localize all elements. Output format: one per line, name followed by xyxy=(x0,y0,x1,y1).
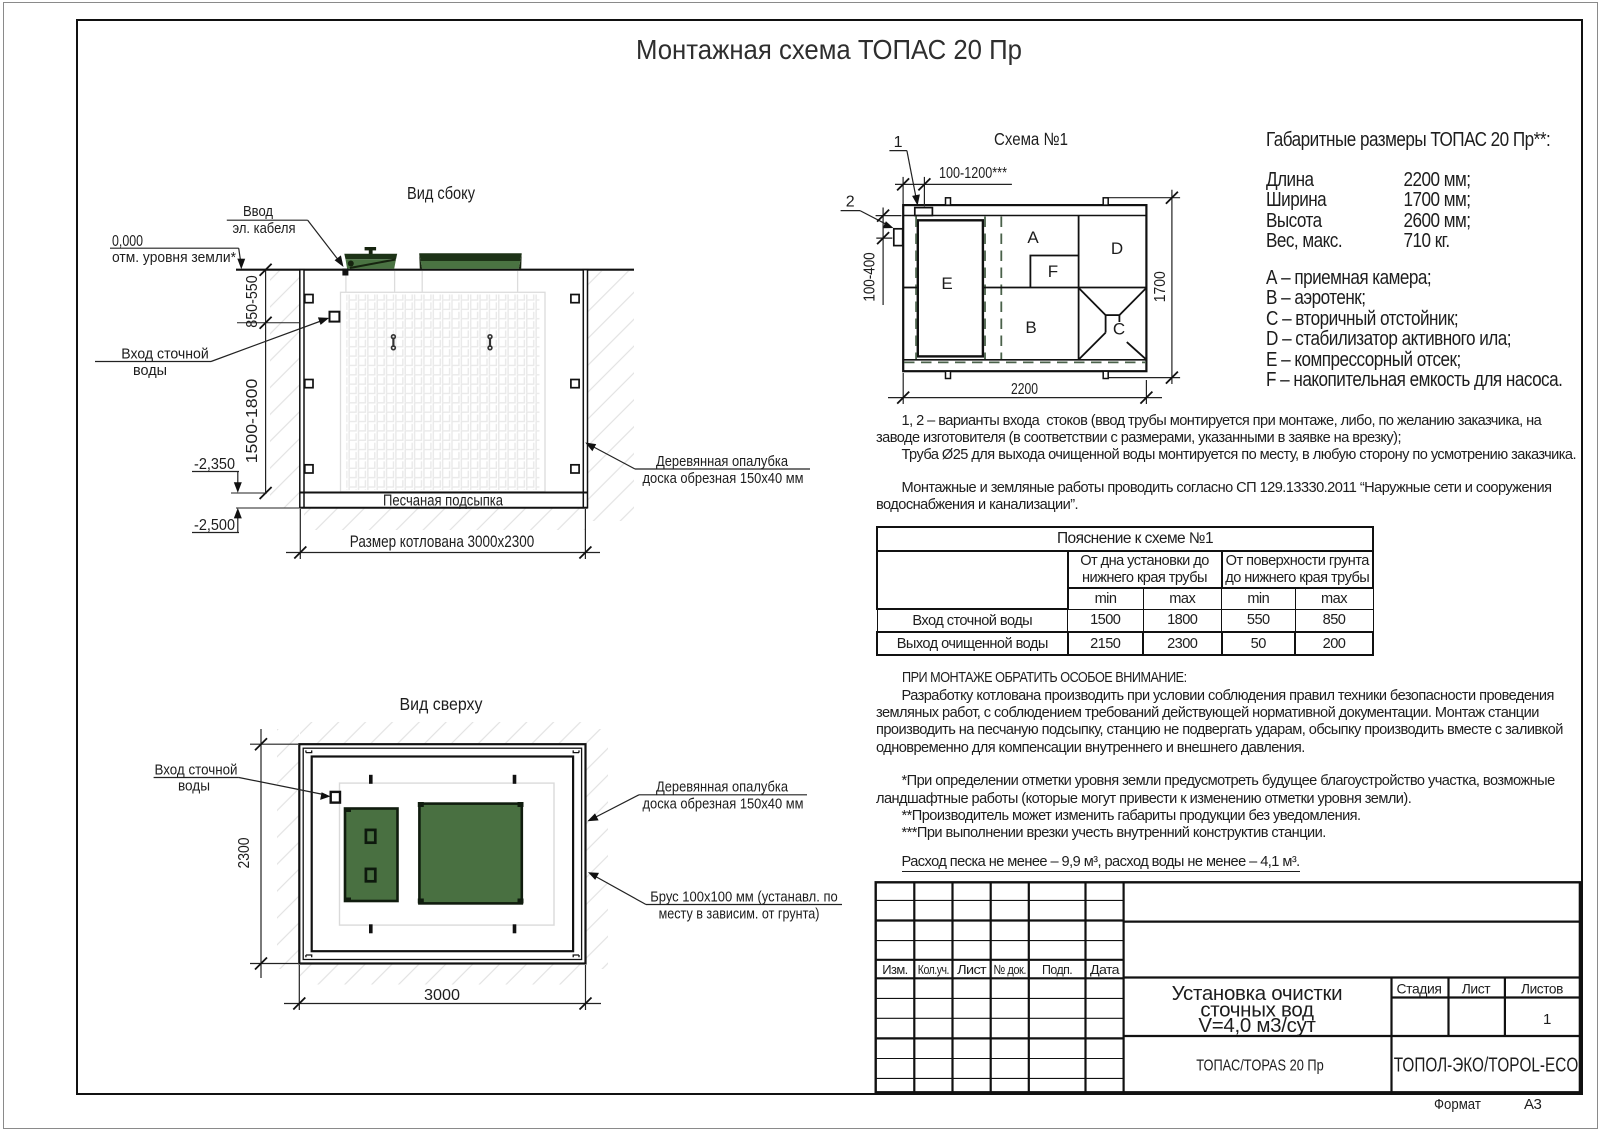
svg-text:Подп.: Подп. xyxy=(1042,962,1072,977)
svg-text:Дата: Дата xyxy=(1090,962,1120,977)
svg-text:100-400: 100-400 xyxy=(862,252,879,302)
svg-text:A: A xyxy=(1027,228,1039,247)
svg-text:E: E xyxy=(941,274,952,293)
svg-text:Изм.: Изм. xyxy=(882,962,907,977)
svg-text:V=4,0 м3/сут: V=4,0 м3/сут xyxy=(1198,1014,1316,1037)
svg-text:ТОПОЛ-ЭКО/TOPOL-ECO: ТОПОЛ-ЭКО/TOPOL-ECO xyxy=(1394,1054,1579,1077)
svg-text:Брус 100х100 мм (устанавл. по: Брус 100х100 мм (устанавл. по xyxy=(650,889,838,906)
svg-text:2300: 2300 xyxy=(236,837,253,868)
svg-text:Кол.уч.: Кол.уч. xyxy=(918,962,949,977)
svg-text:месту в зависим. от грунта): месту в зависим. от грунта) xyxy=(659,906,820,923)
svg-text:2200: 2200 xyxy=(1011,381,1038,398)
svg-text:B: B xyxy=(1025,318,1036,337)
svg-text:Вход сточной: Вход сточной xyxy=(121,346,209,363)
svg-text:0,000: 0,000 xyxy=(112,233,143,250)
svg-text:100-1200***: 100-1200*** xyxy=(939,165,1007,182)
svg-text:Схема №1: Схема №1 xyxy=(994,129,1068,149)
svg-text:воды: воды xyxy=(178,778,210,795)
svg-text:Листов: Листов xyxy=(1521,981,1563,997)
svg-text:Деревянная опалубка: Деревянная опалубка xyxy=(656,779,788,796)
svg-text:Размер котлована 3000х2300: Размер котлована 3000х2300 xyxy=(350,533,534,551)
svg-text:D: D xyxy=(1111,239,1123,258)
svg-text:F: F xyxy=(1048,262,1058,281)
svg-text:1: 1 xyxy=(1543,1011,1551,1028)
svg-text:Стадия: Стадия xyxy=(1397,981,1442,997)
svg-text:Песчаная подсыпка: Песчаная подсыпка xyxy=(383,493,503,510)
svg-text:-2,350: -2,350 xyxy=(194,456,235,473)
svg-text:Деревянная опалубка: Деревянная опалубка xyxy=(656,453,788,470)
svg-text:Лист: Лист xyxy=(1462,981,1491,997)
svg-text:Лист: Лист xyxy=(957,962,987,977)
svg-text:Вид сбоку: Вид сбоку xyxy=(407,183,475,203)
svg-text:-2,500: -2,500 xyxy=(194,517,235,534)
svg-text:C: C xyxy=(1113,320,1125,339)
svg-text:Вид сверху: Вид сверху xyxy=(400,694,483,714)
svg-text:воды: воды xyxy=(133,362,167,379)
svg-text:1500-1800: 1500-1800 xyxy=(244,378,261,463)
svg-text:№ док.: № док. xyxy=(994,962,1026,977)
svg-text:Вход сточной: Вход сточной xyxy=(155,762,238,779)
svg-text:1: 1 xyxy=(894,134,903,151)
svg-text:2: 2 xyxy=(846,193,855,210)
svg-text:доска обрезная 150х40 мм: доска обрезная 150х40 мм xyxy=(643,796,804,813)
svg-text:эл. кабеля: эл. кабеля xyxy=(233,220,296,237)
svg-text:доска обрезная 150х40 мм: доска обрезная 150х40 мм xyxy=(643,470,804,487)
svg-text:1700: 1700 xyxy=(1152,271,1169,302)
svg-text:ТОПАС/TOPAS 20 Пр: ТОПАС/TOPAS 20 Пр xyxy=(1196,1058,1324,1075)
svg-text:отм. уровня земли*: отм. уровня земли* xyxy=(112,250,236,266)
svg-text:850-550: 850-550 xyxy=(244,275,261,328)
svg-text:Ввод: Ввод xyxy=(243,203,273,220)
svg-text:3000: 3000 xyxy=(424,987,460,1004)
